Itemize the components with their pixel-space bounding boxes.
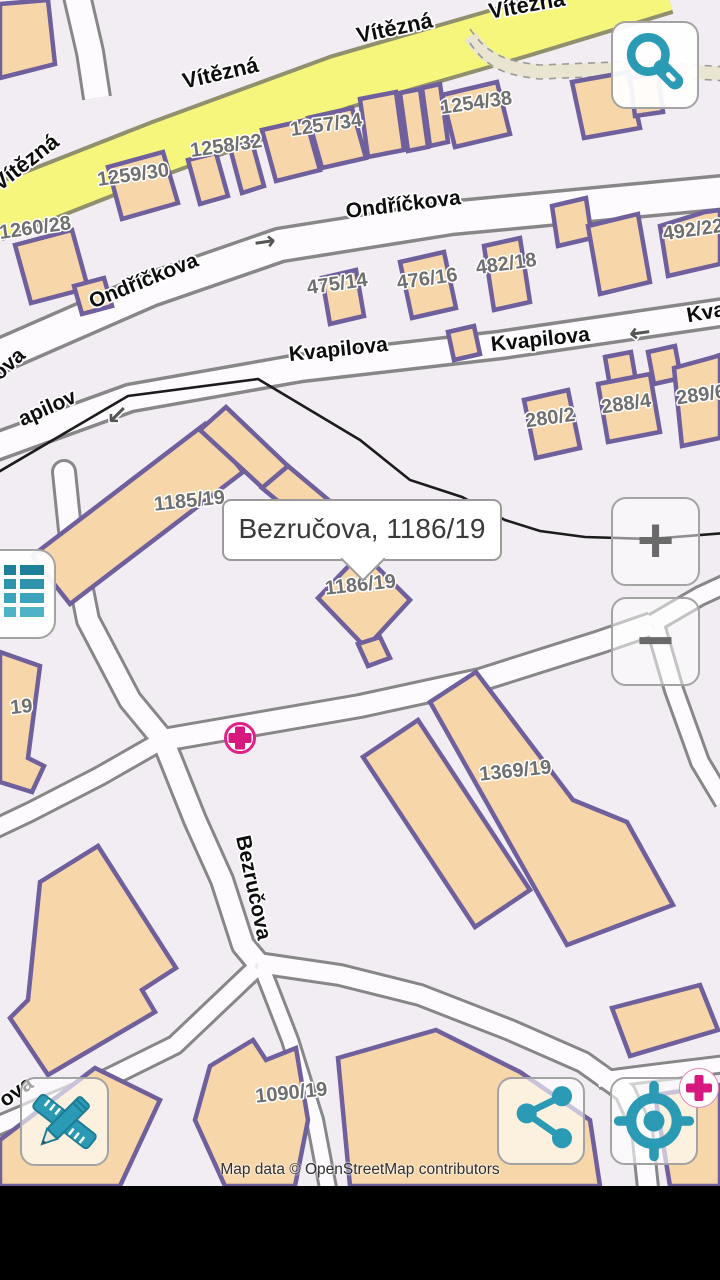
map-app-screen: VítěznáVítěznáVítěznáVítěznáOndříčkovaOn… [0,0,720,1280]
magenta-plus-icon [680,1069,718,1107]
zoom-in-button[interactable]: + [611,497,700,586]
measure-button[interactable] [20,1077,109,1166]
android-navbar [0,1186,720,1280]
oneway-arrow-icon: ↙ [106,401,128,431]
building [588,214,650,294]
building [552,198,592,246]
share-button[interactable] [497,1077,585,1165]
plus-icon: + [613,499,698,584]
oneway-arrow-icon: ← [627,317,653,350]
building [448,326,480,360]
selection-popup[interactable]: Bezručova, 1186/19 [222,499,502,561]
locate-add-badge[interactable] [679,1068,719,1108]
building [0,0,55,78]
pharmacy-cross-icon[interactable] [226,724,255,753]
map-attribution: Map data © OpenStreetMap contributors [0,1161,720,1179]
building [0,652,44,792]
layers-list-button[interactable] [0,549,56,639]
building [358,637,390,666]
zoom-out-button[interactable]: − [611,597,700,686]
minus-icon: − [613,599,698,684]
oneway-arrow-icon: → [252,226,278,259]
building [10,846,176,1075]
building [612,985,718,1056]
ruler-pencil-icon [22,1079,107,1164]
search-button[interactable] [611,21,699,109]
map-canvas[interactable]: VítěznáVítěznáVítěznáVítěznáOndříčkovaOn… [0,0,720,1186]
share-icon [499,1079,583,1163]
parcel-label: 19 [9,695,33,719]
magnifier-icon [613,23,697,107]
list-icon [0,551,54,637]
building [360,92,404,157]
